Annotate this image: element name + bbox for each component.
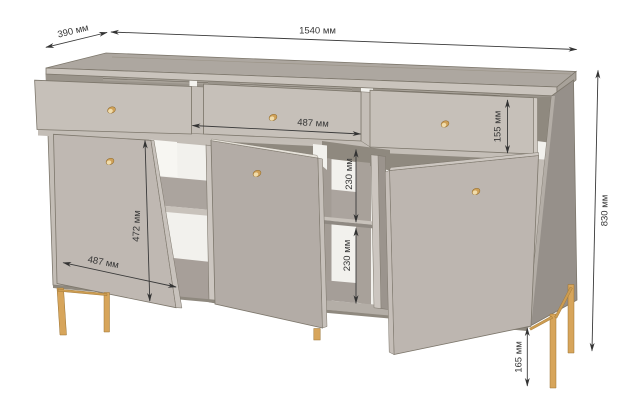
svg-text:155 мм: 155 мм bbox=[493, 111, 504, 143]
svg-text:472 мм: 472 мм bbox=[131, 210, 143, 242]
svg-text:230 мм: 230 мм bbox=[342, 240, 353, 272]
svg-text:487 мм: 487 мм bbox=[297, 117, 329, 130]
svg-text:230 мм: 230 мм bbox=[344, 158, 355, 190]
svg-text:165 мм: 165 мм bbox=[514, 341, 525, 373]
svg-text:1540 мм: 1540 мм bbox=[299, 26, 336, 37]
svg-text:830 мм: 830 мм bbox=[600, 195, 611, 227]
